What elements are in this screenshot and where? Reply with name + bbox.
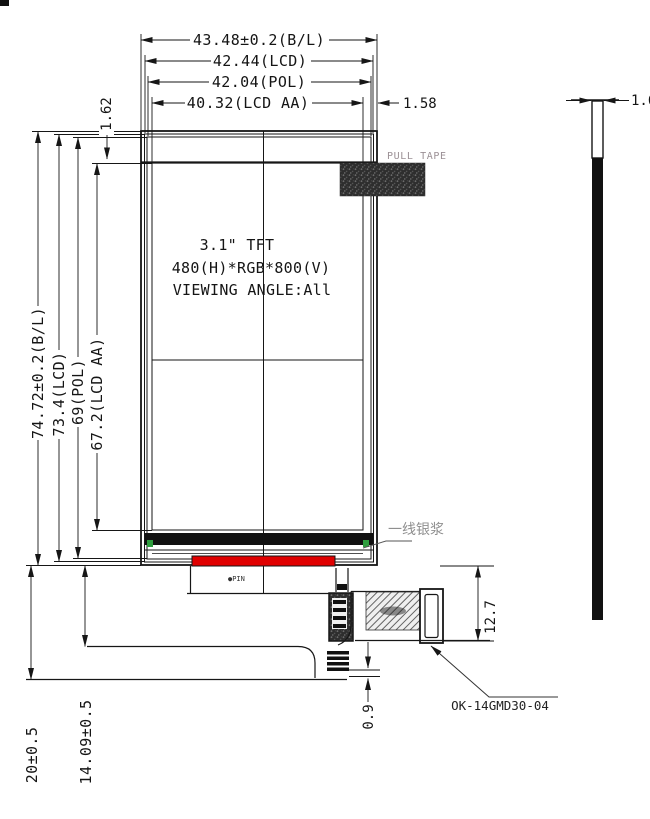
dim-module-thickness: 1.6 (631, 93, 650, 109)
dim-pol-height: 69(POL) (69, 359, 87, 425)
dim-lcd-height: 73.4(LCD) (50, 352, 68, 437)
pin-marker-label: ●PIN (228, 575, 245, 583)
display-size-text: 3.1" TFT (200, 236, 275, 254)
dim-fpc-overall: 20±0.5 (23, 727, 41, 784)
dim-stiffener-thickness: 0.9 (361, 704, 377, 729)
fpc-tail-top (87, 647, 315, 679)
fpc-bonding-bar (192, 556, 335, 566)
connector-end (420, 589, 443, 643)
dim-top-edge-gap: 1.62 (99, 97, 115, 131)
connector-leader (431, 646, 558, 697)
labels: 43.48±0.2(B/L) 42.44(LCD) 42.04(POL) 40.… (23, 31, 650, 784)
display-resolution-text: 480(H)*RGB*800(V) (172, 259, 331, 277)
side-panel-section (592, 158, 603, 620)
active-area-outline (152, 163, 363, 530)
dim-lcd-width: 42.44(LCD) (213, 52, 307, 70)
alignment-mark-left (147, 540, 153, 547)
dim-fpc-fold: 14.09±0.5 (77, 700, 95, 785)
lcd-outline (145, 134, 374, 562)
dim-backlight-height: 74.72±0.2(B/L) (29, 307, 47, 439)
engineering-drawing: 43.48±0.2(B/L) 42.44(LCD) 42.04(POL) 40.… (0, 0, 650, 819)
bottom-bezel-bar (145, 533, 373, 545)
connector-marking (380, 607, 406, 616)
dim-active-area-width: 40.32(LCD AA) (187, 94, 310, 112)
silver-paste-label: 一线银浆 (388, 522, 444, 538)
dim-pol-width: 42.04(POL) (212, 73, 306, 91)
fpc-area (26, 566, 490, 680)
side-tape-section (592, 101, 603, 158)
scan-artifact (0, 0, 9, 6)
side-view (566, 100, 629, 620)
display-viewing-angle-text: VIEWING ANGLE:All (173, 281, 332, 299)
pull-tape (340, 163, 425, 196)
pol-outline (147, 137, 371, 559)
dim-right-edge-gap: 1.58 (403, 96, 437, 112)
drawing-sheet: 43.48±0.2(B/L) 42.44(LCD) 42.04(POL) 40.… (0, 0, 650, 819)
dim-backlight-width: 43.48±0.2(B/L) (193, 31, 325, 49)
dim-connector-offset: 12.7 (483, 600, 499, 634)
pull-tape-label: PULL TAPE (387, 151, 447, 162)
front-view (141, 131, 377, 593)
dim-active-area-height: 67.2(LCD AA) (88, 337, 106, 450)
connector-part-number: OK-14GMD30-04 (451, 698, 549, 713)
